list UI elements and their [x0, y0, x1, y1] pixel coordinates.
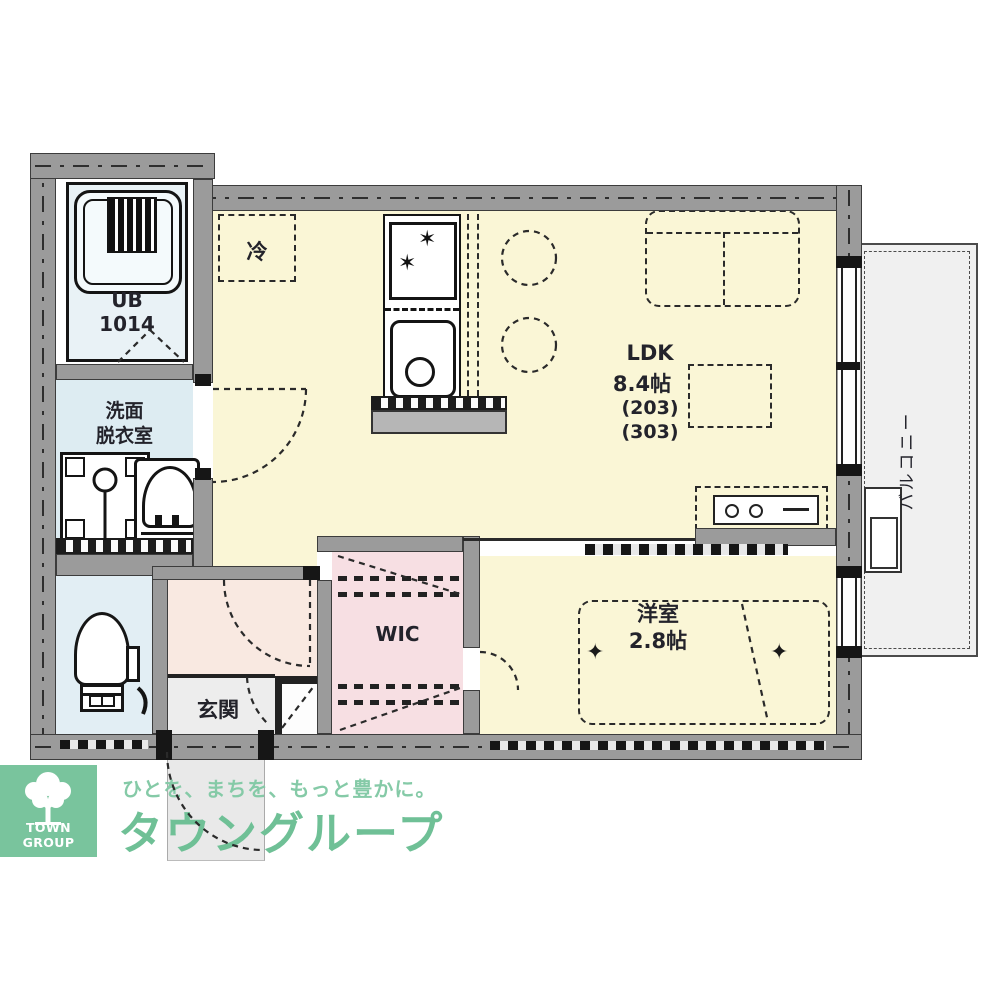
door-jamb: [303, 566, 320, 580]
tree-icon: [17, 769, 79, 827]
kitchen-sink-icon: [390, 320, 456, 398]
floorplan-canvas: ✶ ✶ ✦ ✦: [0, 0, 1000, 1000]
western-room-window: [838, 576, 860, 648]
balcony-window: [838, 266, 860, 466]
wall-wic-right-lower: [463, 690, 480, 734]
wall-left: [30, 153, 56, 760]
wall-bath-washroom: [56, 364, 193, 380]
window-jamb: [836, 566, 862, 578]
wall-toilet-right: [152, 576, 168, 734]
sliding-door-panel: [585, 544, 788, 555]
toilet-tank-icon: [126, 646, 140, 682]
balcony-label: バルコニー: [893, 391, 918, 531]
bath-faucet-icon: [107, 197, 157, 253]
vanity-sink-icon: [134, 458, 200, 544]
washroom-label-line2: 脱衣室: [56, 421, 193, 448]
window-jamb: [836, 464, 862, 476]
toilet-base-icon: [80, 684, 124, 712]
wic-hanger-rail: [338, 700, 462, 705]
bathtub-icon: [74, 190, 182, 294]
western-room-bottom-window: [490, 741, 826, 750]
wall-wic-left: [317, 580, 332, 734]
kitchen-counter: [371, 410, 507, 434]
wall-top-main: [195, 185, 862, 211]
wic-label: WIC: [332, 622, 463, 646]
burner-icon: ✶: [418, 227, 436, 252]
wall-bath-right-upper: [193, 179, 213, 383]
sofa-icon: [645, 210, 800, 307]
window-jamb: [836, 646, 862, 658]
wall-wic-right-upper: [463, 536, 480, 648]
wic-hanger-rail: [338, 684, 462, 689]
toilet-window: [60, 740, 148, 749]
wall-bath-right-lower: [193, 478, 213, 580]
wall-top-bath: [30, 153, 215, 179]
wall-hall-top: [152, 566, 320, 580]
town-group-logo-text: TOWN GROUP: [0, 820, 97, 850]
entrance-label: 玄関: [168, 694, 268, 724]
wic-hanger-rail: [338, 592, 462, 597]
ac-unit-icon: [695, 486, 828, 530]
entrance-jamb: [258, 730, 274, 760]
refrigerator-label: 冷: [218, 236, 296, 266]
door-jamb: [195, 468, 211, 480]
hall: [168, 578, 317, 676]
kitchen-counter-window: [371, 396, 507, 410]
unit-bath-size: 1014: [66, 312, 188, 336]
ldk-unit-203: (203): [598, 397, 702, 419]
sliding-door-track: [463, 538, 695, 541]
entrance-step-line: [168, 674, 275, 678]
wall-wic-top: [317, 536, 463, 552]
ldk-unit-303: (303): [598, 421, 702, 443]
door-jamb: [195, 374, 211, 386]
ldk-size: 8.4帖: [590, 368, 694, 398]
shoe-cabinet-left-wall: [275, 676, 282, 734]
unit-bath-label: UB: [66, 288, 188, 312]
western-room-label: 洋室: [558, 598, 758, 628]
bed-marker-icon: ✦: [770, 640, 788, 665]
washroom-label-line1: 洗面: [56, 396, 193, 423]
ldk-label: LDK: [598, 341, 702, 365]
burner-icon: ✶: [398, 251, 416, 276]
kitchen-unit: ✶ ✶: [383, 214, 461, 398]
counter-edge-dashed: [467, 214, 479, 396]
window-jamb: [836, 256, 862, 268]
town-group-logo: TOWN GROUP: [0, 765, 97, 857]
washroom-window: [56, 538, 193, 554]
western-room-size: 2.8帖: [558, 625, 758, 655]
wic-hanger-rail: [338, 576, 462, 581]
ldk-room-extension: [213, 536, 317, 568]
entrance-jamb: [156, 730, 172, 760]
stove-icon: ✶ ✶: [389, 222, 457, 300]
balcony: [858, 243, 978, 657]
brand-company-name: タウングループ: [118, 797, 444, 862]
